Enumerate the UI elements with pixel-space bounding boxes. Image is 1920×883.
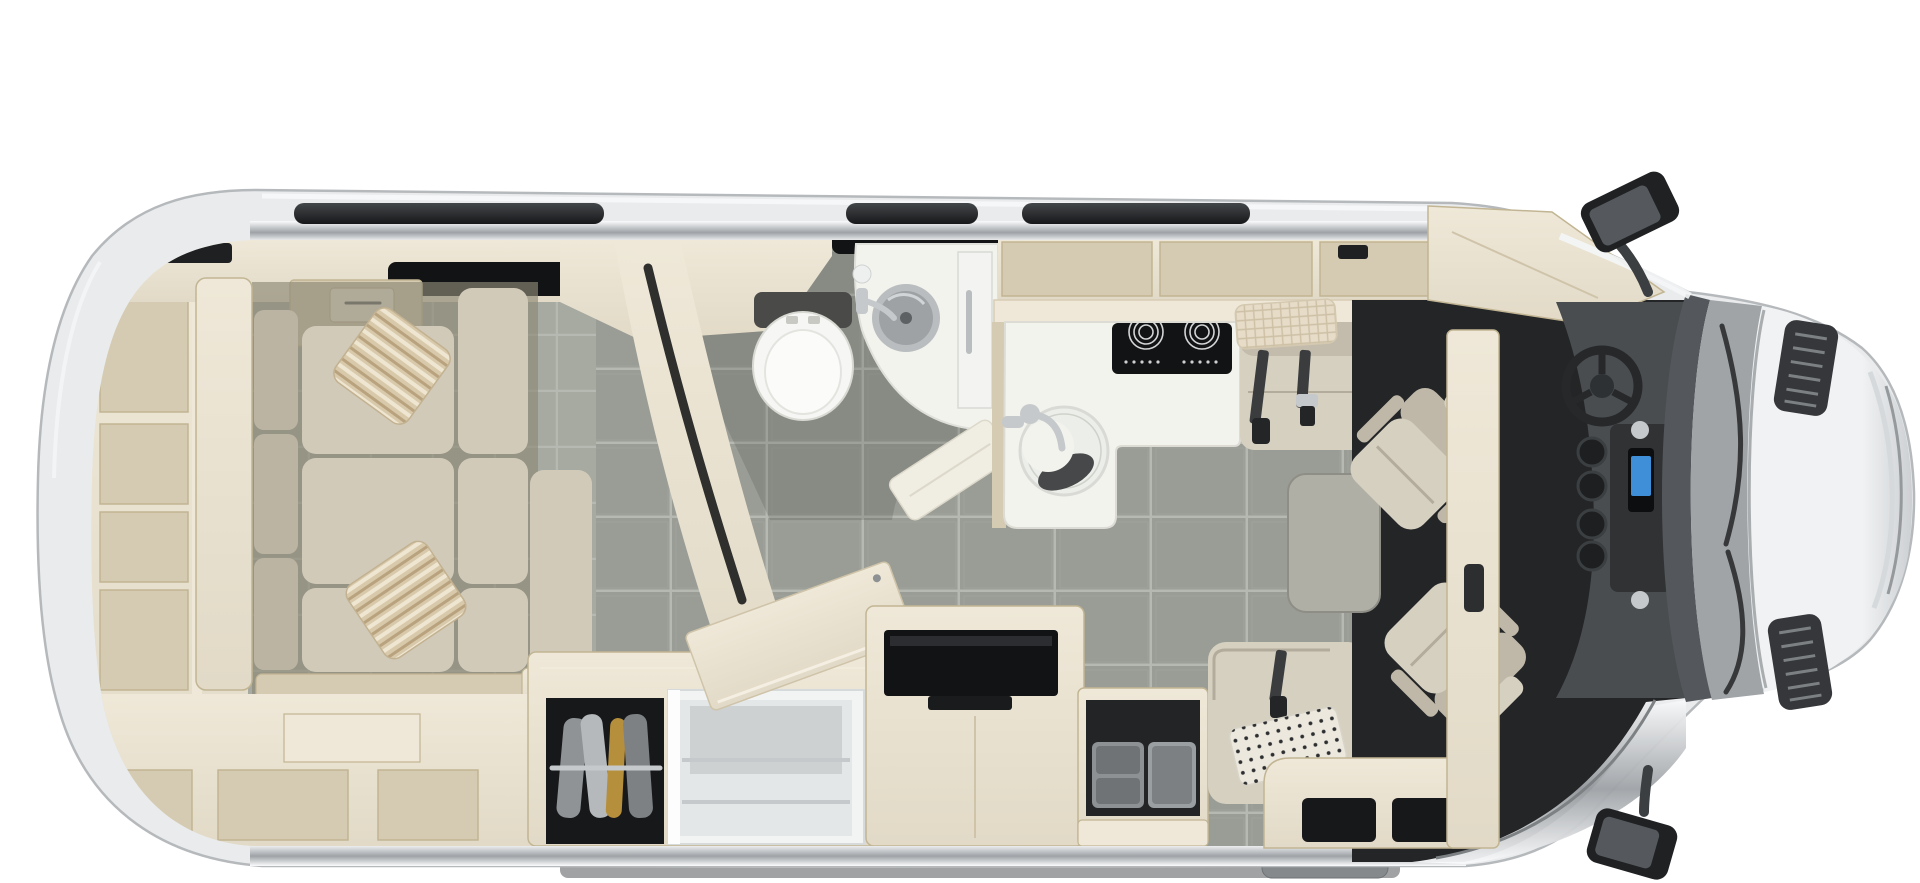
shower-divider — [958, 252, 992, 408]
roof-awning — [294, 203, 604, 224]
refrigerator — [668, 690, 864, 844]
roof-vent-a — [846, 203, 978, 224]
cutlery-drawer — [1078, 688, 1208, 846]
floorplan-image — [0, 0, 1920, 883]
induction-cooktop — [1112, 315, 1232, 374]
wardrobe — [546, 698, 664, 844]
pedestal-table — [1288, 474, 1380, 612]
toilet — [753, 292, 853, 420]
rear-shelving — [100, 280, 202, 700]
bench-blanket — [1235, 299, 1338, 350]
tv-cabinet — [866, 606, 1084, 846]
entry-cabinet-cubby — [1302, 798, 1376, 842]
partition-handle — [1464, 564, 1484, 612]
rear-lounge-sofa — [196, 278, 596, 714]
roof-vent-b — [1022, 203, 1250, 224]
top-wall-band — [250, 221, 1464, 242]
